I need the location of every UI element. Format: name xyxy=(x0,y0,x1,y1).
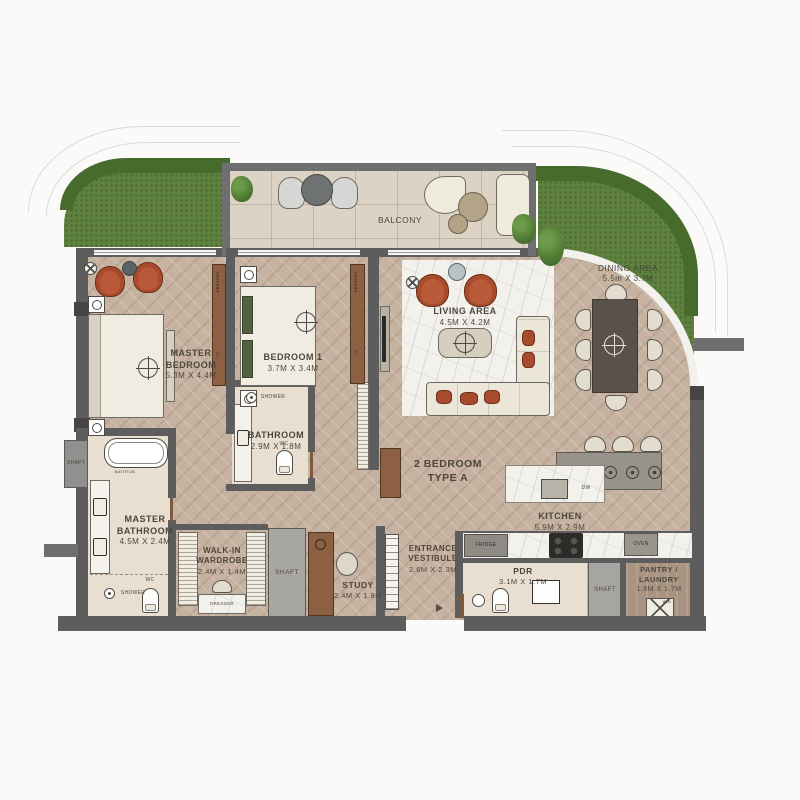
shaft-b-box: SHAFT xyxy=(268,528,306,618)
window-living-area xyxy=(388,250,520,255)
master-bathroom-name: MASTER BATHROOM xyxy=(110,514,180,537)
dining-chair-left-2 xyxy=(575,339,591,361)
fridge-label: FRIDGE xyxy=(465,543,507,549)
bedroom1-nightstand-top xyxy=(240,266,257,283)
bathroom-door xyxy=(310,452,313,478)
study-cabinet-door xyxy=(308,532,334,616)
living-area-label: LIVING AREA 4.5M X 4.2M xyxy=(418,306,512,328)
balcony-plant-right xyxy=(512,214,536,244)
dining-ceiling-light xyxy=(604,335,624,355)
living-armchair-right xyxy=(464,274,497,307)
island-sink xyxy=(541,479,568,499)
bathroom-right-wall-upper xyxy=(308,380,315,452)
dining-chair-left-1 xyxy=(575,309,591,331)
bedroom1-tv-label: TV xyxy=(354,349,358,355)
living-armchair-left xyxy=(416,274,449,307)
cooktop xyxy=(549,533,583,558)
bathroom-shower-head xyxy=(246,392,257,403)
dishwasher-label: DW xyxy=(576,486,596,492)
washer-dryer-label: W/D xyxy=(658,600,676,604)
sofa-pillow-4 xyxy=(522,330,535,346)
bedroom1-ceiling-light xyxy=(296,312,316,332)
study-chair xyxy=(336,552,358,576)
master-nightstand-bottom xyxy=(88,419,105,436)
pantry-dims: 1.8M X 1.7M xyxy=(628,585,690,594)
right-exterior-wall xyxy=(690,386,704,631)
shaft-b-label: SHAFT xyxy=(269,569,305,576)
left-wall-stub xyxy=(44,544,78,557)
pdr-name: PDR xyxy=(487,566,559,577)
master-dresser-label: DRESSER xyxy=(216,271,220,292)
shaft-c-box: SHAFT xyxy=(588,562,622,618)
unit-type-label: 2 BEDROOM TYPE A xyxy=(400,458,496,485)
living-area-name: LIVING AREA xyxy=(418,306,512,318)
dining-area-label: DINING AREA 5.5m X 3.7M xyxy=(584,263,672,284)
master-bedroom-name: MASTER BEDROOM xyxy=(150,348,232,371)
master-bed-pillows xyxy=(89,315,101,417)
master-bathroom-label: MASTER BATHROOM 4.5M X 2.4M xyxy=(110,514,180,548)
master-bedroom-label: MASTER BEDROOM 5.3M X 4.4M xyxy=(150,348,232,382)
bathroom-bottom-wall xyxy=(226,484,315,491)
dining-chair-left-3 xyxy=(575,369,591,391)
master-armchair-left xyxy=(95,266,125,297)
bedroom1-dresser-label: DRESSER xyxy=(354,271,358,292)
wardrobe-dresser-label: DRESSER xyxy=(199,602,245,607)
bathroom-label: BATHROOM 2.9M X 1.8M xyxy=(244,430,308,452)
entrance-dims: 2.6M X 2.3M xyxy=(398,565,468,575)
centre-spine-wall-lower xyxy=(369,382,379,470)
bar-place-setting-2 xyxy=(626,466,639,479)
sofa-pillow-3 xyxy=(484,390,500,404)
oven: OVEN xyxy=(624,533,658,556)
balcony-side-table-small xyxy=(448,214,468,234)
bedroom1-label: BEDROOM 1 3.7M X 3.4M xyxy=(252,352,334,374)
right-wall-stub xyxy=(694,338,744,351)
sofa-pillow-2 xyxy=(460,392,478,405)
kitchen-counter-back-wall xyxy=(460,558,692,563)
kitchen-name: KITCHEN xyxy=(512,511,608,523)
pantry-label: PANTRY / LAUNDRY 1.8M X 1.7M xyxy=(628,565,690,594)
balcony-round-table xyxy=(301,174,333,206)
master-shower-partition xyxy=(90,574,168,575)
sofa-pillow-5 xyxy=(522,352,535,368)
balcony-parapet-left xyxy=(222,163,230,256)
bedroom1-tv-cabinet: DRESSER TV xyxy=(350,264,365,384)
master-bathtub xyxy=(104,438,168,468)
shaft-c-label: SHAFT xyxy=(589,587,621,593)
bar-stool-3 xyxy=(640,436,662,452)
pdr-sink xyxy=(472,594,485,607)
master-sink-bottom xyxy=(93,538,107,556)
wardrobe-label: WALK-IN WARDROBE 2.4M X 1.4M xyxy=(193,546,251,577)
master-shower-label: SHOWER xyxy=(117,591,149,597)
living-light-symbol xyxy=(406,276,419,289)
study-door-handle xyxy=(315,539,326,550)
master-vanity xyxy=(90,480,110,574)
master-bathroom-dims: 4.5M X 2.4M xyxy=(110,537,180,547)
bathroom-wc xyxy=(276,450,293,475)
master-armchair-right xyxy=(133,262,163,293)
entry-door xyxy=(460,594,464,618)
living-tv xyxy=(382,316,386,362)
master-bedroom-dims: 5.3M X 4.4M xyxy=(150,371,232,381)
bedroom1-name: BEDROOM 1 xyxy=(252,352,334,364)
living-area-dims: 4.5M X 4.2M xyxy=(418,318,512,328)
kitchen-label: KITCHEN 5.9M X 2.9M xyxy=(512,511,608,533)
master-wc-label: WC xyxy=(140,578,160,584)
wardrobe-dims: 2.4M X 1.4M xyxy=(193,567,251,577)
bathroom-shower-label: SHOWER xyxy=(258,395,288,401)
balcony-name: BALCONY xyxy=(370,215,430,226)
wardrobe-name: WALK-IN WARDROBE xyxy=(193,546,251,567)
unit-type-line1: 2 BEDROOM xyxy=(400,458,496,472)
study-label: STUDY 2.4M X 1.8M xyxy=(326,580,390,601)
bathtub-label: BATHTUB xyxy=(100,470,150,474)
centre-storage-cabinet xyxy=(357,382,369,470)
balcony-label: BALCONY xyxy=(370,215,430,226)
column-right-curve xyxy=(690,386,704,400)
entrance-console xyxy=(380,448,401,498)
balcony-parapet-top xyxy=(222,163,536,171)
window-bedroom-1 xyxy=(238,250,360,255)
study-name: STUDY xyxy=(326,580,390,591)
bottom-wall-right-segment xyxy=(464,616,706,631)
dining-chair-top xyxy=(605,284,627,300)
bar-stool-1 xyxy=(584,436,606,452)
garden-palm xyxy=(538,226,564,266)
shaft-pantry-wall xyxy=(620,560,626,618)
master-light-symbol xyxy=(84,262,97,275)
study-dims: 2.4M X 1.8M xyxy=(326,591,390,601)
bathroom-name: BATHROOM xyxy=(244,430,308,442)
master-nightstand-top xyxy=(88,296,105,313)
living-ceiling-light xyxy=(455,333,475,353)
sofa-pillow-1 xyxy=(436,390,452,404)
shaft-a-box: SHAFT xyxy=(64,440,88,488)
pdr-label: PDR 3.1M X 1.7M xyxy=(487,566,559,587)
bedroom1-dims: 3.7M X 3.4M xyxy=(252,364,334,374)
shaft-a-label: SHAFT xyxy=(65,461,87,467)
window-master-bedroom xyxy=(94,250,216,255)
wardrobe-stool xyxy=(212,580,232,593)
bedroom1-pillow-top xyxy=(242,296,253,334)
bottom-wall-left-segment xyxy=(58,616,406,631)
balcony-chair-right xyxy=(331,177,358,209)
pantry-name: PANTRY / LAUNDRY xyxy=(628,565,690,585)
dining-area-dims: 5.5m X 3.7M xyxy=(584,274,672,284)
master-sink-top xyxy=(93,498,107,516)
wardrobe-top-wall xyxy=(176,524,268,530)
pdr-dims: 3.1M X 1.7M xyxy=(487,577,559,587)
pdr-wc xyxy=(492,588,509,613)
balcony-plant-left xyxy=(231,176,253,202)
dining-area-name: DINING AREA xyxy=(584,263,672,274)
bar-place-setting-1 xyxy=(604,466,617,479)
entrance-label: ENTRANCE VESTIBULE 2.6M X 2.3M xyxy=(398,544,468,575)
entry-arrow-icon xyxy=(436,604,443,612)
master-shower-head xyxy=(104,588,115,599)
living-round-table xyxy=(448,263,466,281)
bar-place-setting-3 xyxy=(648,466,661,479)
master-round-table xyxy=(122,261,137,276)
kitchen-dims: 5.9M X 2.9M xyxy=(512,523,608,533)
study-entrance-wall xyxy=(376,526,385,618)
bathroom-dims: 2.9M X 1.8M xyxy=(244,442,308,452)
bar-stool-2 xyxy=(612,436,634,452)
entrance-name: ENTRANCE VESTIBULE xyxy=(398,544,468,565)
unit-type-line2: TYPE A xyxy=(400,472,496,486)
oven-label: OVEN xyxy=(625,542,657,548)
master-bath-right-wall-upper xyxy=(168,428,176,498)
fridge: FRIDGE xyxy=(464,534,508,557)
floor-plan-canvas: BALCONY MASTER BEDROOM 5.3M X 4.4M DRESS… xyxy=(0,0,800,800)
wardrobe-dresser: DRESSER xyxy=(198,594,246,614)
